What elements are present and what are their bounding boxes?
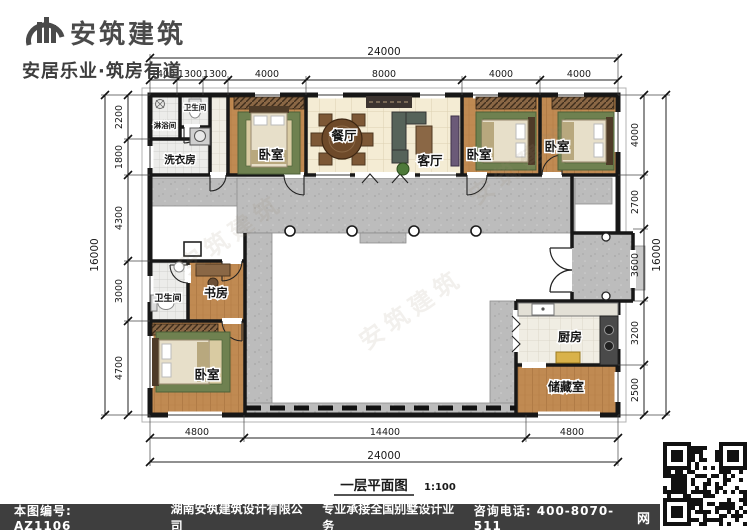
footer-bar: 本图编号: AZ1106 湖南安筑建筑设计有限公司 专业承接全国别墅设计业务 咨… [0, 504, 750, 530]
dim-right-seg: 3200 [630, 321, 641, 345]
dim-left-seg: 4300 [114, 206, 125, 230]
brand-name: 安筑建筑 [70, 14, 186, 51]
room-label-bedroom4: 卧室 [194, 367, 220, 382]
room-label-wc-left: 卫生间 [154, 292, 181, 304]
dim-top-total: 24000 [367, 46, 400, 58]
qr-code [660, 437, 750, 530]
dim-bottom-seg: 4800 [185, 427, 209, 438]
dim-bottom-seg: 4800 [560, 427, 584, 438]
service-text: 专业承接全国别墅设计业务 [322, 500, 462, 530]
dim-top-seg: 4000 [255, 69, 279, 80]
caption-scale: 1:100 [424, 482, 456, 493]
brand-building-icon [22, 10, 66, 54]
room-label-bedroom2: 卧室 [466, 147, 492, 162]
tv-cabinet [451, 116, 459, 166]
washing-machine [190, 128, 210, 145]
caption-title: 一层平面图 [340, 478, 408, 494]
drawing-sheet: 安筑建筑 安居乐业·筑房有道 安筑建筑 安筑建筑 安筑建筑 [0, 0, 750, 530]
dim-top-seg: 1300 [203, 69, 227, 80]
bed [238, 106, 300, 174]
dim-right-total: 16000 [651, 238, 663, 271]
room-label-bedroom3: 卧室 [544, 139, 570, 154]
dim-top-seg: 8000 [372, 69, 396, 80]
room-label-laundry: 洗衣房 [164, 153, 196, 166]
dim-left-seg: 1800 [114, 145, 125, 169]
dim-right-seg: 2700 [630, 190, 641, 214]
room-label-dining: 餐厅 [330, 128, 357, 143]
room-label-study: 书房 [204, 285, 228, 300]
dim-top-seg: 4000 [567, 69, 591, 80]
logo-header: 安筑建筑 安居乐业·筑房有道 [22, 10, 186, 83]
dim-left-seg: 3000 [114, 279, 125, 303]
brand-slogan: 安居乐业·筑房有道 [22, 57, 186, 83]
dim-right-seg: 2500 [630, 378, 641, 402]
dim-right-seg: 4000 [630, 123, 641, 147]
dim-left-total: 16000 [89, 238, 101, 271]
dim-bottom-seg: 14400 [370, 427, 400, 438]
phone-number: 咨询电话: 400-8070-511 [474, 502, 637, 530]
plan-caption: 一层平面图 1:100 [334, 478, 456, 495]
entrance-gate [516, 233, 645, 301]
room-label-living: 客厅 [416, 153, 443, 168]
room-label-kitchen: 厨房 [558, 329, 582, 344]
dim-left-seg: 4700 [114, 356, 125, 380]
bed [152, 332, 230, 392]
dim-bottom-total: 24000 [367, 450, 400, 462]
dim-right-seg: 3600 [630, 253, 641, 277]
gate-double-door [550, 248, 572, 292]
dim-top-seg: 4000 [489, 69, 513, 80]
room-label-wc-top: 卫生间 [184, 102, 207, 112]
room-label-shower: 淋浴间 [154, 120, 177, 130]
qr-label: 网 [637, 508, 650, 527]
courtyard-drain-feature [184, 242, 201, 256]
company-name: 湖南安筑建筑设计有限公司 [171, 500, 311, 530]
drawing-number: 本图编号: AZ1106 [14, 502, 131, 530]
room-label-bedroom1: 卧室 [258, 147, 284, 162]
room-label-storage: 储藏室 [548, 379, 584, 394]
dim-left-seg: 2200 [114, 105, 125, 129]
